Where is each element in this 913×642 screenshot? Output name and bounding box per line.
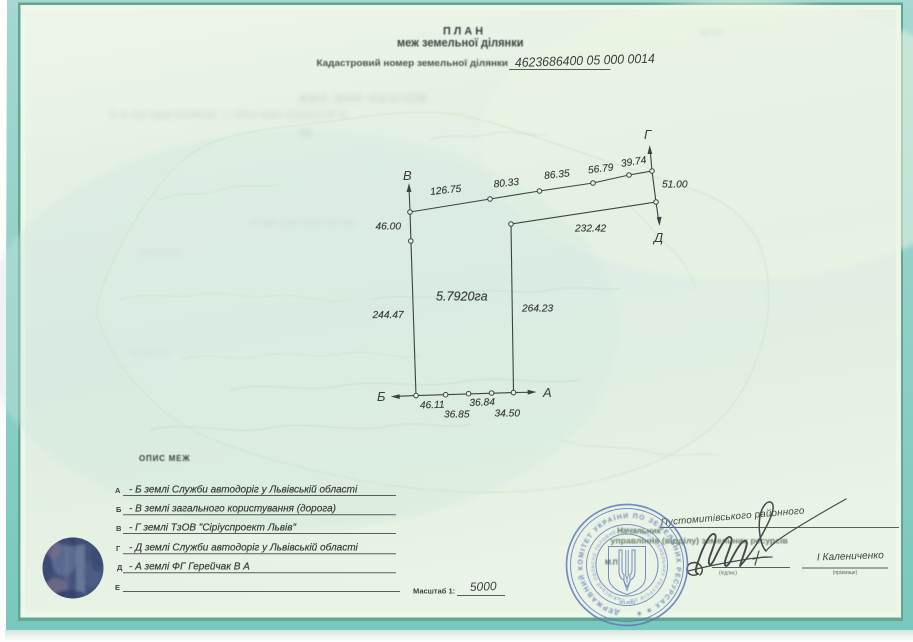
svg-text:232.42: 232.42 [574,224,606,235]
svg-text:ан вва о ч: ан вва о ч [130,348,170,357]
svg-text:ІНІ: ІНІ [300,128,312,138]
svg-text:- В землі загального користува: - В землі загального користування (дорог… [129,504,336,515]
svg-text:Д: Д [652,230,663,245]
svg-text:- А землі ФГ Герейчак В А: - А землі ФГ Герейчак В А [129,562,250,573]
svg-text:(підпис): (підпис) [719,571,737,577]
svg-text:В: В [116,524,122,533]
svg-text:І Калениченко: І Калениченко [817,550,885,563]
svg-text:Масштаб 1:: Масштаб 1: [413,587,455,596]
svg-text:Д: Д [117,563,123,572]
svg-text:244.47: 244.47 [372,310,404,321]
svg-text:А: А [115,486,121,495]
svg-text:- Г землі ТзОВ "Сіріуспроект: - Г землі ТзОВ "Сіріуспроект Львів" [129,523,296,534]
svg-text:А: А [542,385,552,400]
svg-text:В: В [403,168,412,183]
svg-text:пн авіл ання ав ва апч ана: пн авіл ання ав ва апч ана [250,218,355,227]
svg-text:- Б землі Служби автодоріг у Л: - Б землі Служби автодоріг у Львівській … [129,484,358,496]
svg-text:Б: Б [377,389,386,404]
svg-text:ОПИС МЕЖ: ОПИС МЕЖ [139,454,190,463]
svg-text:Г: Г [644,127,652,142]
svg-text:36.85: 36.85 [444,410,470,421]
svg-text:Н А ПО ІНШ НАЯНОІ — ОПО НАЧ: Н А ПО ІНШ НАЯНОІ — ОПО НАЧ ОАООЧ В Н [110,110,347,120]
svg-text:Г: Г [116,544,121,553]
svg-text:5.7920га: 5.7920га [436,290,488,304]
svg-text:46.00: 46.00 [376,222,402,233]
svg-text:(прізвище): (прізвище) [833,570,858,576]
svg-text:34.50: 34.50 [495,409,521,420]
svg-text:- Д землі Служби автодоріг у Л: - Д землі Служби автодоріг у Львівській … [129,542,359,554]
svg-text:ИНА ИНЕ ИАОЧЕВ: ИНА ИНЕ ИАОЧЕВ [300,93,428,105]
svg-text:4614893: 4614893 [619,600,636,605]
svg-text:46.11: 46.11 [420,400,445,412]
svg-text:5000: 5000 [470,579,497,594]
svg-text:51.00: 51.00 [662,180,688,191]
svg-text:Кадастровий номер земельної ді: Кадастровий номер земельної ділянки [317,58,509,68]
svg-text:ав і оча нн: ав і оча нн [140,248,182,257]
svg-text:Б: Б [116,505,122,514]
svg-text:Е: Е [115,583,120,592]
svg-text:меж земельної ділянки: меж земельної ділянки [397,36,524,50]
svg-text:ин на: ин на [700,28,722,37]
svg-text:264.23: 264.23 [521,304,553,315]
svg-text:М.П: М.П [605,560,618,567]
svg-text:36.84: 36.84 [469,397,495,409]
